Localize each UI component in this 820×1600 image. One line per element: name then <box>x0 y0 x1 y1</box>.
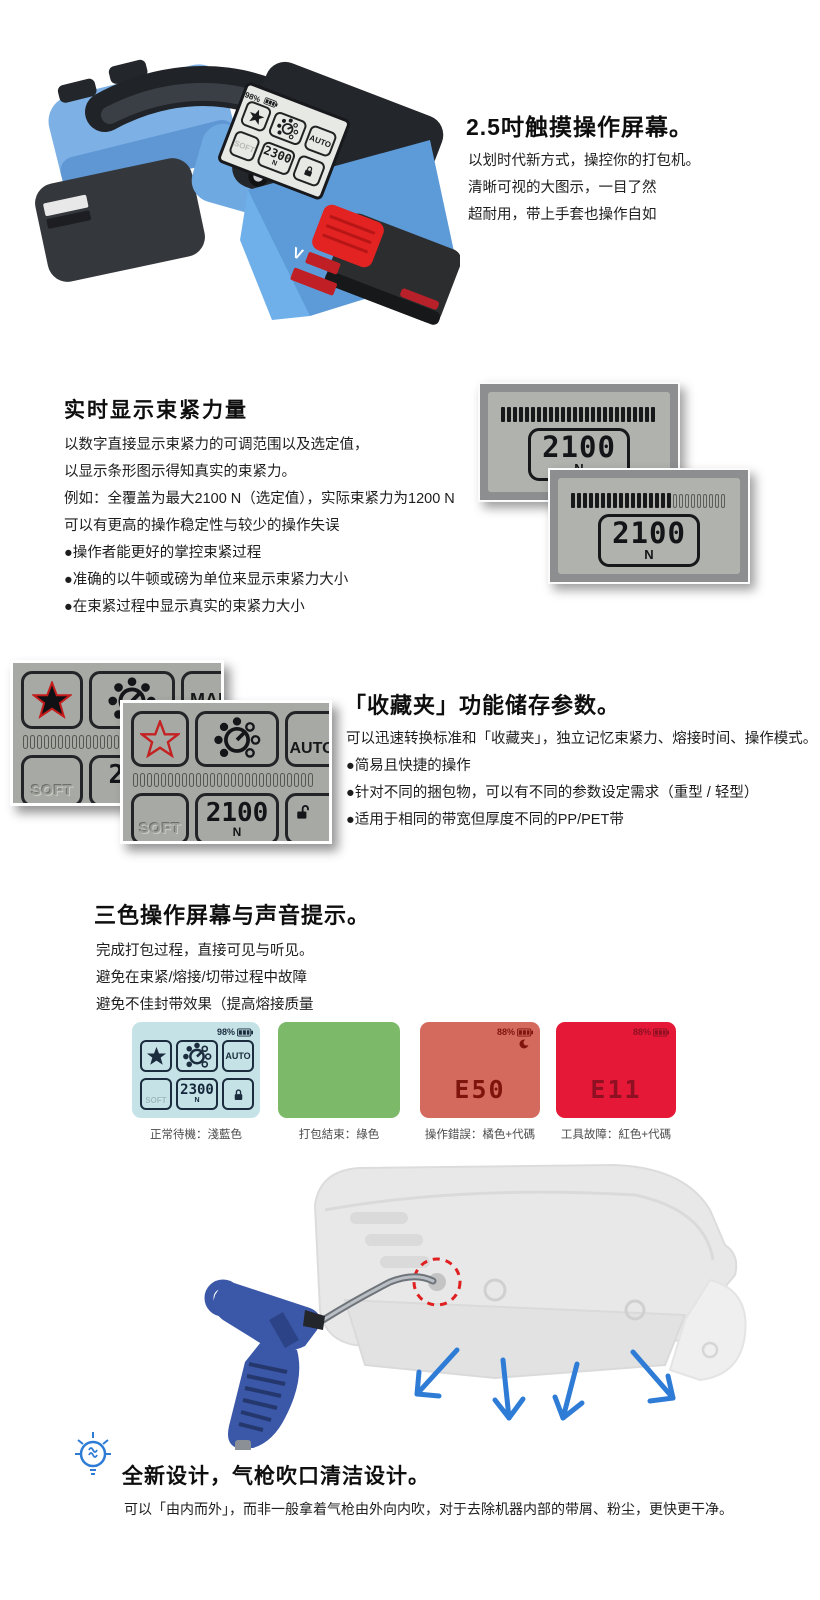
screen-fault: 88% E11 <box>556 1022 676 1118</box>
bar-segment-empty <box>266 773 271 787</box>
favorites-bullet-1: ●简易且快捷的操作 <box>346 753 471 780</box>
hero-line-2: 清晰可视的大图示，一目了然 <box>468 175 657 202</box>
bar-segment-empty <box>252 773 257 787</box>
force-bullet-3: ●在束紧过程中显示真实的束紧力大小 <box>64 594 305 621</box>
error-code: E50 <box>420 1075 540 1104</box>
force-bar-graph <box>571 493 727 508</box>
bar-segment-empty <box>51 735 56 749</box>
bar-segment-filled <box>633 407 637 422</box>
lock-closed-icon <box>302 164 316 179</box>
mode-label: AUTO <box>289 740 332 758</box>
bar-segment-empty <box>182 773 187 787</box>
bar-segment-empty <box>93 735 98 749</box>
bar-segment-filled <box>627 407 631 422</box>
battery-percent: 88% <box>633 1027 651 1037</box>
tension-value-display: 2300N <box>176 1078 218 1110</box>
bar-segment-empty <box>273 773 278 787</box>
favorites-bullet-3: ●适用于相同的带宽但厚度不同的PP/PET带 <box>346 807 624 834</box>
bar-segment-empty <box>238 773 243 787</box>
bar-segment-filled <box>661 493 665 508</box>
status-icon <box>518 1039 530 1049</box>
bar-segment-empty <box>308 773 313 787</box>
bar-segment-empty <box>715 494 719 508</box>
bar-segment-filled <box>561 407 565 422</box>
screen-standby: 98% AUTO SOFT 2300N <box>132 1022 260 1118</box>
bar-segment-filled <box>589 493 593 508</box>
tension-value-display: 2100N <box>195 793 279 844</box>
lightbulb-icon <box>70 1428 116 1486</box>
force-line-3: 例如：全覆盖为最大2100 N（选定值），实际束紧力为1200 N <box>64 486 455 513</box>
bar-segment-empty <box>189 773 194 787</box>
battery-indicator: 88% <box>633 1027 669 1037</box>
mode-button: AUTO <box>285 711 332 767</box>
favorites-line-1: 可以迅速转换标准和「收藏夹」，独立记忆束紧力、熔接时间、操作模式。 <box>346 726 817 753</box>
lock-closed-icon <box>233 1088 244 1101</box>
bar-segment-filled <box>573 407 577 422</box>
force-value: 2100 <box>601 518 697 548</box>
battery-icon <box>653 1028 669 1037</box>
bar-segment-empty <box>58 735 63 749</box>
soft-label: SOFT <box>139 820 181 837</box>
bar-segment-empty <box>44 735 49 749</box>
bar-segment-empty <box>140 773 145 787</box>
bar-segment-empty <box>685 494 689 508</box>
favorite-star-button <box>140 1040 172 1072</box>
bar-segment-filled <box>595 493 599 508</box>
screen-finished <box>278 1022 400 1118</box>
lock-button <box>285 793 332 844</box>
mode-label: AUTO <box>225 1051 250 1061</box>
battery-icon <box>237 1028 253 1037</box>
airgun-line: 可以「由内而外」，而非一般拿着气枪由外向内吹，对于去除机器内部的带屑、粉尘，更快… <box>124 1496 733 1523</box>
favorites-bullet-2: ●针对不同的捆包物，可以有不同的参数设定需求（重型 / 轻型） <box>346 780 758 807</box>
bar-segment-filled <box>507 407 511 422</box>
lcd-panel-partial-force: 2100 N <box>548 468 750 584</box>
product-detail-page: V 98% <box>0 0 820 1600</box>
mode-label: AUTO <box>308 133 332 149</box>
bar-segment-empty <box>697 494 701 508</box>
bar-segment-empty <box>30 735 35 749</box>
battery-indicator: 98% <box>217 1027 253 1037</box>
battery-percent: 98% <box>217 1027 235 1037</box>
hero-line-3: 超耐用，带上手套也操作自如 <box>468 202 657 229</box>
bar-segment-filled <box>577 493 581 508</box>
bar-segment-filled <box>655 493 659 508</box>
soft-label: SOFT <box>233 138 256 154</box>
bar-segment-filled <box>607 493 611 508</box>
bar-segment-empty <box>23 735 28 749</box>
bar-segment-empty <box>287 773 292 787</box>
bar-segment-empty <box>691 494 695 508</box>
bar-segment-filled <box>645 407 649 422</box>
star-filled-icon <box>32 681 72 719</box>
tension-value-display: 2300N <box>256 140 297 176</box>
bar-segment-filled <box>585 407 589 422</box>
bar-segment-empty <box>673 494 677 508</box>
bar-segment-filled <box>567 407 571 422</box>
bar-segment-filled <box>525 407 529 422</box>
bar-segment-filled <box>649 493 653 508</box>
bar-segment-filled <box>639 407 643 422</box>
airgun-cleaning-image <box>165 1150 765 1450</box>
tricolor-section-title: 三色操作屏幕与声音提示。 <box>94 898 370 930</box>
bar-segment-filled <box>531 407 535 422</box>
tension-bar-graph <box>133 773 323 787</box>
soft-label: SOFT <box>31 782 73 799</box>
bar-segment-filled <box>609 407 613 422</box>
tricolor-line-3: 避免不佳封带效果（提高熔接质量 <box>96 992 314 1019</box>
bar-segment-empty <box>224 773 229 787</box>
bar-segment-filled <box>625 493 629 508</box>
bar-segment-filled <box>597 407 601 422</box>
bar-segment-filled <box>601 493 605 508</box>
bar-segment-filled <box>513 407 517 422</box>
favorite-star-button <box>131 711 189 767</box>
bar-segment-filled <box>615 407 619 422</box>
bar-segment-empty <box>703 494 707 508</box>
screen-caption-standby: 正常待機：淺藍色 <box>122 1126 270 1142</box>
star-outline-icon <box>140 720 180 758</box>
bar-segment-filled <box>555 407 559 422</box>
star-icon <box>245 106 267 127</box>
bar-segment-empty <box>79 735 84 749</box>
screen-caption-finished: 打包結束：綠色 <box>278 1126 400 1142</box>
bar-segment-filled <box>501 407 505 422</box>
screen-caption-error: 操作錯誤：橘色+代碼 <box>414 1126 546 1142</box>
force-line-1: 以数字直接显示束紧力的可调范围以及选定值， <box>64 432 369 459</box>
lock-button <box>291 154 326 188</box>
screen-error: 88% E50 <box>420 1022 540 1118</box>
bar-segment-filled <box>613 493 617 508</box>
tension-dial-button <box>176 1040 218 1072</box>
bar-segment-filled <box>643 493 647 508</box>
air-gun <box>209 1280 325 1450</box>
bar-segment-empty <box>245 773 250 787</box>
bar-segment-empty <box>107 735 112 749</box>
bar-segment-filled <box>579 407 583 422</box>
bar-segment-filled <box>637 493 641 508</box>
bar-segment-filled <box>667 493 671 508</box>
bar-segment-filled <box>549 407 553 422</box>
bar-segment-empty <box>709 494 713 508</box>
bar-segment-empty <box>168 773 173 787</box>
bar-segment-empty <box>679 494 683 508</box>
lcd-screen: 2100 N <box>558 478 740 574</box>
bar-segment-empty <box>147 773 152 787</box>
bar-segment-empty <box>65 735 70 749</box>
airgun-illustration <box>165 1150 765 1450</box>
bar-segment-filled <box>621 407 625 422</box>
bar-segment-empty <box>100 735 105 749</box>
favorites-section-title: 「收藏夹」功能储存参数。 <box>344 688 620 720</box>
hero-line-1: 以划时代新方式，操控你的打包机。 <box>468 148 700 175</box>
bar-segment-empty <box>114 735 119 749</box>
star-icon <box>146 1046 167 1066</box>
tension-unit: N <box>180 1097 214 1104</box>
soft-mode-button: SOFT <box>140 1078 172 1110</box>
tension-dial-button <box>195 711 279 767</box>
bar-segment-filled <box>619 493 623 508</box>
bar-segment-empty <box>37 735 42 749</box>
bar-segment-empty <box>217 773 222 787</box>
bar-segment-filled <box>591 407 595 422</box>
bar-segment-empty <box>259 773 264 787</box>
force-line-4: 可以有更高的操作稳定性与较少的操作失误 <box>64 513 340 540</box>
tricolor-line-1: 完成打包过程，直接可见与听见。 <box>96 938 314 965</box>
force-bullet-1: ●操作者能更好的掌控束紧过程 <box>64 540 261 567</box>
bar-segment-filled <box>583 493 587 508</box>
bar-segment-empty <box>294 773 299 787</box>
bar-segment-filled <box>571 493 575 508</box>
bar-segment-filled <box>537 407 541 422</box>
battery-percent: 88% <box>497 1027 515 1037</box>
soft-label: SOFT <box>145 1096 166 1105</box>
bar-segment-empty <box>72 735 77 749</box>
bar-segment-filled <box>603 407 607 422</box>
bar-segment-filled <box>519 407 523 422</box>
dial-icon <box>179 1041 215 1071</box>
favorites-screen-auto: AUTO SOFT 2100N <box>120 700 332 844</box>
bar-segment-empty <box>203 773 208 787</box>
force-line-2: 以显示条形图示得知真实的束紧力。 <box>64 459 296 486</box>
fault-code: E11 <box>556 1075 676 1104</box>
bar-segment-filled <box>651 407 655 422</box>
force-bar-graph <box>501 407 657 422</box>
tension-value: 2300 <box>180 1084 214 1097</box>
battery-indicator: 88% <box>497 1027 533 1037</box>
bar-segment-filled <box>543 407 547 422</box>
bar-segment-empty <box>154 773 159 787</box>
bar-segment-empty <box>175 773 180 787</box>
bar-segment-empty <box>133 773 138 787</box>
force-bullet-2: ●准确的以牛顿或磅为单位来显示束紧力大小 <box>64 567 348 594</box>
soft-mode-button: SOFT <box>21 755 83 806</box>
screen-caption-fault: 工具故障：紅色+代碼 <box>550 1126 682 1142</box>
battery-icon <box>517 1028 533 1037</box>
bar-segment-empty <box>301 773 306 787</box>
force-value-box: 2100 N <box>598 514 700 567</box>
mode-button: AUTO <box>222 1040 254 1072</box>
bar-segment-empty <box>161 773 166 787</box>
hero-product-image: V 98% <box>10 20 460 330</box>
bar-segment-filled <box>631 493 635 508</box>
force-section-title: 实时显示束紧力量 <box>64 394 248 424</box>
lock-open-icon <box>296 803 311 820</box>
strapping-tool-illustration: V <box>10 20 460 330</box>
airgun-section-title: 全新设计，气枪吹口清洁设计。 <box>122 1460 430 1490</box>
soft-mode-button: SOFT <box>131 793 189 844</box>
hero-title: 2.5吋触摸操作屏幕。 <box>466 108 693 142</box>
favorite-star-button <box>21 671 83 729</box>
bar-segment-empty <box>210 773 215 787</box>
lock-button <box>222 1078 254 1110</box>
force-value: 2100 <box>531 432 627 462</box>
bar-segment-empty <box>231 773 236 787</box>
tension-value: 2100 <box>206 801 269 826</box>
dial-icon <box>207 714 267 764</box>
soft-mode-button: SOFT <box>228 129 262 163</box>
bar-segment-empty <box>280 773 285 787</box>
bar-segment-empty <box>196 773 201 787</box>
bar-segment-empty <box>86 735 91 749</box>
tricolor-line-2: 避免在束紧/熔接/切带过程中故障 <box>96 965 307 992</box>
bar-segment-empty <box>721 494 725 508</box>
